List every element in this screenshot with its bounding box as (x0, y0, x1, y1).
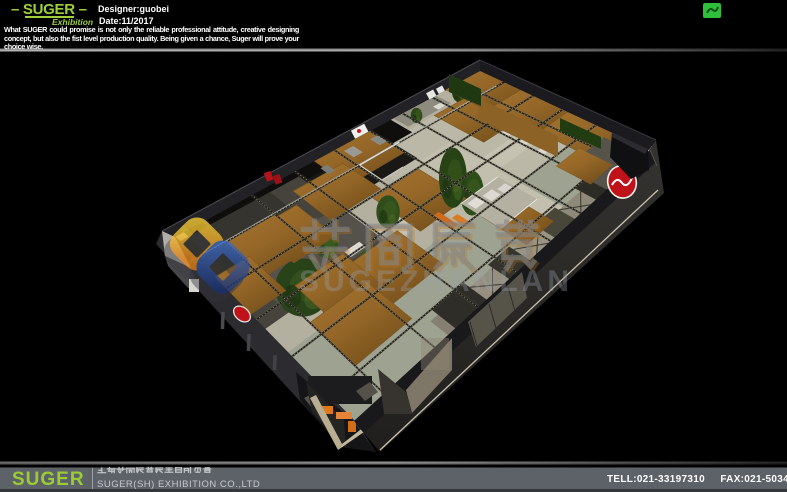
svg-text:SUGEZHANLAN: SUGEZHANLAN (299, 265, 573, 298)
